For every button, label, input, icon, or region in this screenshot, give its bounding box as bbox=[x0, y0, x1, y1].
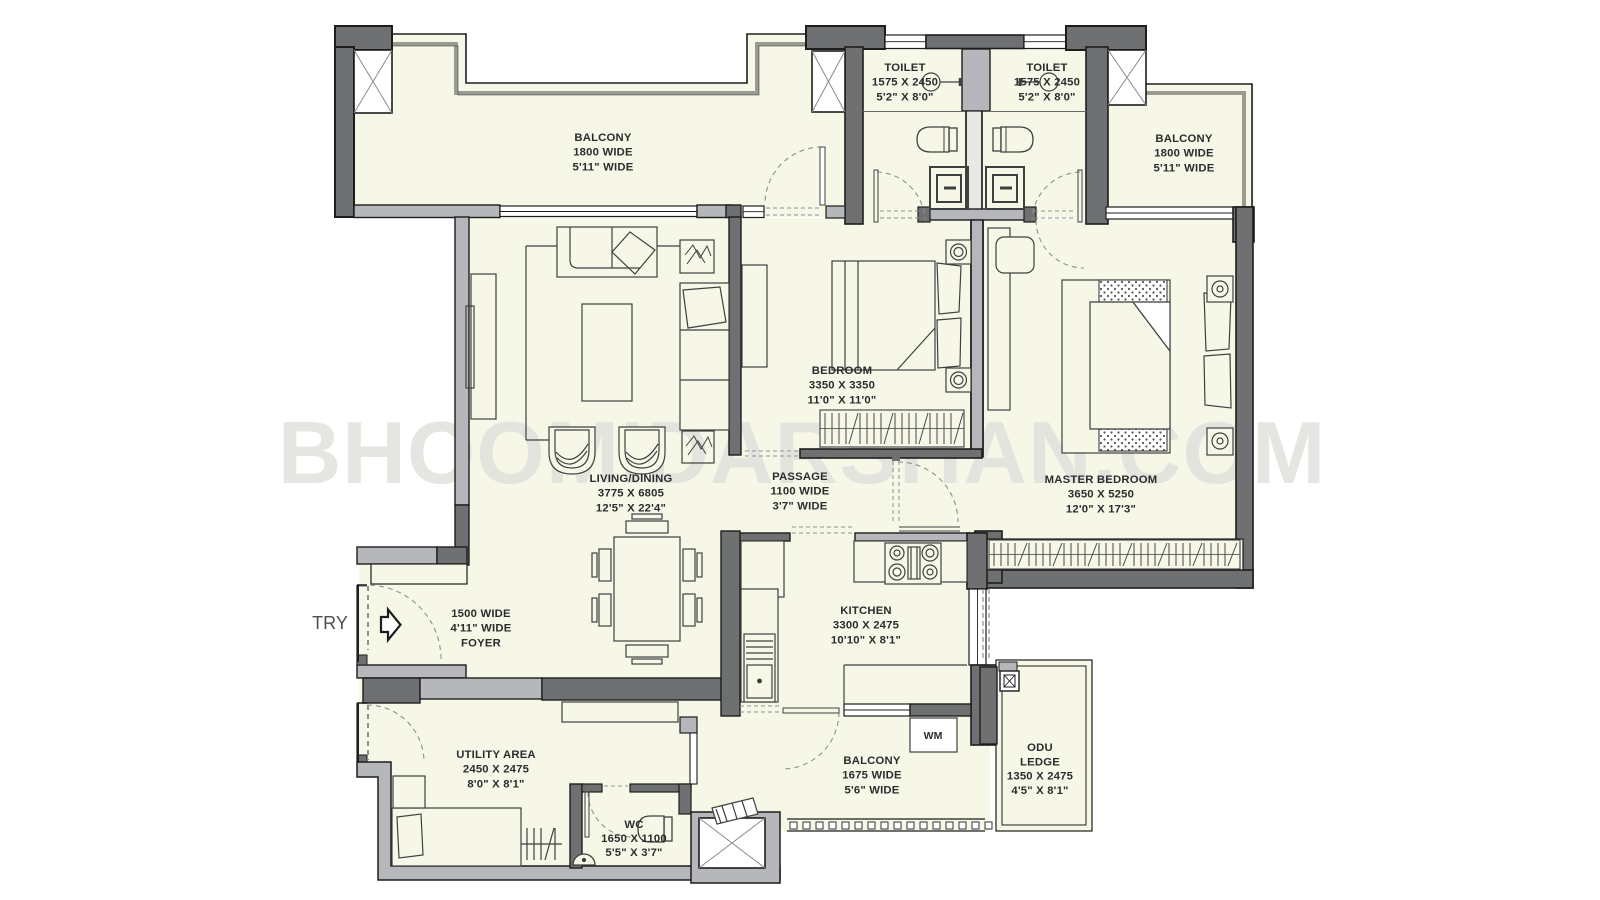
svg-text:1350 X 2475: 1350 X 2475 bbox=[1007, 771, 1073, 783]
svg-text:1800 WIDE: 1800 WIDE bbox=[1154, 148, 1214, 160]
svg-text:BALCONY: BALCONY bbox=[1155, 133, 1213, 145]
svg-text:BEDROOM: BEDROOM bbox=[812, 365, 872, 377]
svg-text:WM: WM bbox=[924, 730, 943, 742]
svg-text:10'10" X 8'1": 10'10" X 8'1" bbox=[831, 634, 901, 646]
svg-text:1800 WIDE: 1800 WIDE bbox=[573, 147, 633, 159]
svg-text:TOILET: TOILET bbox=[884, 62, 925, 74]
svg-text:KITCHEN: KITCHEN bbox=[840, 605, 892, 617]
svg-text:TOILET: TOILET bbox=[1026, 62, 1067, 74]
svg-text:12'0" X 17'3": 12'0" X 17'3" bbox=[1066, 503, 1136, 515]
svg-text:5'2" X 8'0": 5'2" X 8'0" bbox=[1018, 91, 1075, 103]
svg-text:4'5" X 8'1": 4'5" X 8'1" bbox=[1011, 785, 1068, 797]
svg-text:BALCONY: BALCONY bbox=[843, 755, 901, 767]
svg-text:LIVING/DINING: LIVING/DINING bbox=[590, 473, 673, 485]
svg-text:5'11" WIDE: 5'11" WIDE bbox=[1154, 162, 1215, 174]
svg-text:12'5" X 22'4": 12'5" X 22'4" bbox=[596, 502, 666, 514]
svg-text:TRY: TRY bbox=[312, 613, 348, 633]
svg-text:1100 WIDE: 1100 WIDE bbox=[771, 486, 830, 498]
svg-text:MASTER BEDROOM: MASTER BEDROOM bbox=[1045, 474, 1158, 486]
svg-text:11'0" X 11'0": 11'0" X 11'0" bbox=[808, 394, 877, 406]
svg-text:1675 WIDE: 1675 WIDE bbox=[842, 770, 902, 782]
svg-text:8'0" X 8'1": 8'0" X 8'1" bbox=[467, 778, 524, 790]
svg-text:PASSAGE: PASSAGE bbox=[772, 471, 828, 483]
svg-text:5'2" X 8'0": 5'2" X 8'0" bbox=[876, 91, 933, 103]
svg-text:1575 X 2450: 1575 X 2450 bbox=[872, 77, 938, 89]
svg-text:3300 X 2475: 3300 X 2475 bbox=[833, 620, 899, 632]
svg-text:1575 X 2450: 1575 X 2450 bbox=[1014, 77, 1080, 89]
svg-text:FOYER: FOYER bbox=[461, 637, 501, 649]
svg-text:3775 X 6805: 3775 X 6805 bbox=[598, 488, 664, 500]
svg-text:5'6" WIDE: 5'6" WIDE bbox=[844, 784, 899, 796]
svg-text:5'11" WIDE: 5'11" WIDE bbox=[573, 161, 634, 173]
svg-text:WC: WC bbox=[624, 819, 643, 831]
svg-text:1500 WIDE: 1500 WIDE bbox=[451, 608, 511, 620]
svg-text:LEDGE: LEDGE bbox=[1020, 756, 1060, 768]
svg-text:3650 X 5250: 3650 X 5250 bbox=[1068, 489, 1134, 501]
svg-text:3'7" WIDE: 3'7" WIDE bbox=[772, 500, 827, 512]
svg-text:2450 X 2475: 2450 X 2475 bbox=[463, 764, 529, 776]
svg-text:1650 X 1100: 1650 X 1100 bbox=[601, 833, 667, 845]
svg-text:BALCONY: BALCONY bbox=[574, 132, 632, 144]
svg-text:3350 X 3350: 3350 X 3350 bbox=[809, 380, 875, 392]
svg-text:5'5" X 3'7": 5'5" X 3'7" bbox=[605, 847, 662, 859]
svg-text:UTILITY AREA: UTILITY AREA bbox=[456, 749, 536, 761]
svg-text:ODU: ODU bbox=[1027, 742, 1053, 754]
svg-text:4'11" WIDE: 4'11" WIDE bbox=[451, 623, 512, 635]
